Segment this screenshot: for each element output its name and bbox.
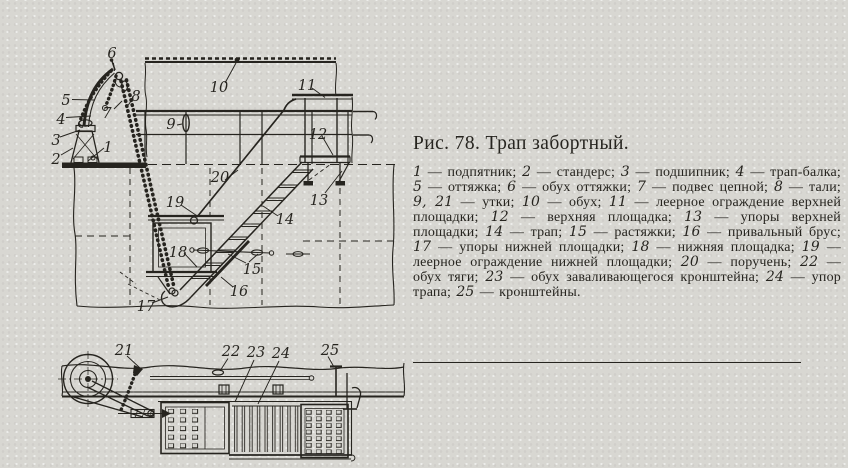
figure-caption-title: Рис. 78. Трап забортный. <box>413 133 841 155</box>
legend-entry: 12 — верхняя площадка; <box>491 210 684 225</box>
legend-entry: 18 — нижняя площадка; <box>631 240 801 255</box>
diagram-callout-15: 15 <box>243 262 261 278</box>
stays-turnbuckles <box>190 248 310 257</box>
legend-entry: 4 — трап-балка; <box>736 165 841 180</box>
stowed-ladder <box>161 402 355 461</box>
diagram-callout-23: 23 <box>246 345 265 361</box>
legend-entry: 10 — обух; <box>522 195 609 210</box>
legend-entry: 23 — обух заваливающегося кронштейна; <box>485 270 766 285</box>
legend-entry-number: 4 <box>736 164 745 180</box>
legend-entry: 14 — трап; <box>485 225 569 240</box>
legend-entry: 15 — растяжки; <box>569 225 683 240</box>
legend-entry-number: 25 <box>456 284 474 300</box>
legend-entry: 2 — стандерс; <box>522 165 621 180</box>
legend-entry: 7 — подвес цепной; <box>637 180 774 195</box>
diagram-callout-1: 1 <box>103 140 112 156</box>
legend-entry-number: 3 <box>621 164 630 180</box>
legend-entry: 9, 21 — утки; <box>413 195 522 210</box>
diagram-callout-5: 5 <box>61 93 70 109</box>
legend-entry-number: 2 <box>522 164 531 180</box>
legend-entry: 17 — упоры нижней площадки; <box>413 240 631 255</box>
diagram-callout-7: 7 <box>102 106 112 122</box>
legend-entry-number: 18 <box>631 239 649 255</box>
diagram-callout-25: 25 <box>320 343 339 359</box>
legend-entry: 5 — оттяжка; <box>413 180 507 195</box>
figure-78-drawing: 1234567891011121314151617181920212223242… <box>0 0 420 468</box>
legend-entry-number: 9, 21 <box>413 194 453 210</box>
diagram-callout-18: 18 <box>169 245 187 261</box>
legend-entry-number: 23 <box>485 269 503 285</box>
diagram-callout-2: 2 <box>50 152 60 168</box>
diagram-callout-24: 24 <box>271 346 290 362</box>
figure-caption: Рис. 78. Трап забортный. 1 — подпятник; … <box>413 133 841 300</box>
diagram-callout-10: 10 <box>210 80 228 96</box>
davit-assembly <box>62 58 175 294</box>
diagram-callout-22: 22 <box>221 344 240 360</box>
legend-entry-number: 17 <box>413 239 431 255</box>
legend-entry-number: 1 <box>413 164 422 180</box>
legend-entry-number: 14 <box>485 224 503 240</box>
legend-entry-number: 12 <box>491 209 509 225</box>
diagram-callout-14: 14 <box>276 212 294 228</box>
scanned-book-page: 1234567891011121314151617181920212223242… <box>0 0 848 468</box>
handrail <box>191 99 297 224</box>
tie-rod <box>150 370 314 380</box>
legend-entry: 8 — тали; <box>774 180 841 195</box>
upper-platform <box>292 95 377 186</box>
legend-entry: 20 — поручень; <box>681 255 800 270</box>
diagram-callout-17: 17 <box>137 299 156 315</box>
legend-entry-number: 6 <box>507 179 516 195</box>
diagram-callout-8: 8 <box>131 89 140 105</box>
diagram-callout-16: 16 <box>230 284 248 300</box>
diagram-callout-3: 3 <box>51 133 60 149</box>
diagram-callout-20: 20 <box>210 170 229 186</box>
legend-entry: 6 — обух оттяжки; <box>507 180 637 195</box>
caption-divider-rule <box>413 362 801 363</box>
cleat-9 <box>183 113 189 134</box>
rigging-screw <box>118 409 171 418</box>
diagram-callout-6: 6 <box>107 46 116 62</box>
legend-entry-number: 8 <box>774 179 783 195</box>
legend-entry: 1 — подпятник; <box>413 165 522 180</box>
legend-entry-number: 10 <box>522 194 540 210</box>
legend-entry-number: 19 <box>802 239 820 255</box>
eyebolt-10 <box>235 58 240 63</box>
legend-entry-number: 11 <box>609 194 627 210</box>
rod-eyebolt-22 <box>213 370 224 375</box>
figure-legend: 1 — подпятник; 2 — стандерс; 3 — подшипн… <box>413 165 841 300</box>
hoist-wheel <box>58 351 154 417</box>
legend-entry-number: 16 <box>682 224 700 240</box>
legend-entry: 3 — подшипник; <box>621 165 736 180</box>
side-fittings <box>219 367 361 410</box>
legend-entry-number: 13 <box>684 209 702 225</box>
diagram-callout-11: 11 <box>298 78 316 94</box>
diagram-callout-21: 21 <box>114 343 133 359</box>
diagram-callout-4: 4 <box>55 112 65 128</box>
legend-entry-number: 5 <box>413 179 422 195</box>
legend-entry-number: 7 <box>637 179 646 195</box>
legend-entry-number: 15 <box>569 224 587 240</box>
legend-entry-number: 22 <box>800 254 818 270</box>
diagram-callout-9: 9 <box>166 117 175 133</box>
diagram-callout-13: 13 <box>310 193 328 209</box>
legend-entry-number: 20 <box>681 254 699 270</box>
legend-entry: 25 — кронштейны. <box>456 285 580 300</box>
legend-entry-number: 24 <box>766 269 784 285</box>
stowed-view <box>58 351 405 461</box>
diagram-callout-12: 12 <box>309 127 327 143</box>
diagram-callout-19: 19 <box>166 195 184 211</box>
legend-entry: 16 — привальный брус; <box>682 225 841 240</box>
